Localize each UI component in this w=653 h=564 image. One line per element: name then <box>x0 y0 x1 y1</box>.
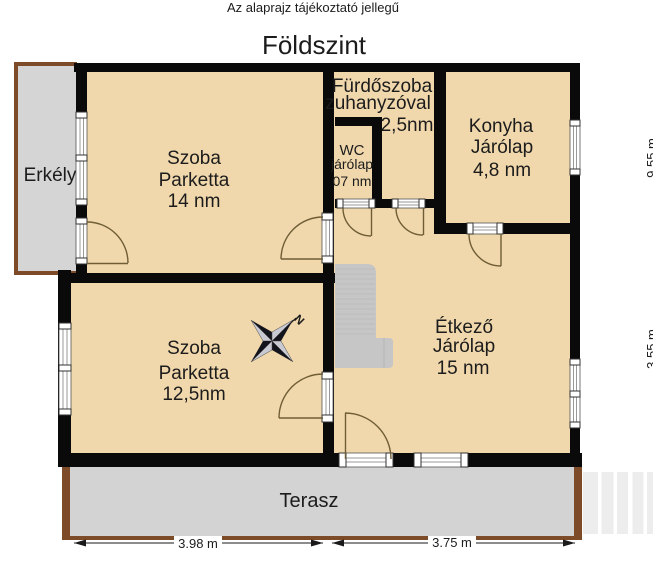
svg-text:Szoba: Szoba <box>167 338 221 359</box>
svg-text:Konyha: Konyha <box>469 116 534 137</box>
svg-text:2,5nm: 2,5nm <box>381 115 434 136</box>
svg-text:Étkező: Étkező <box>435 317 493 338</box>
svg-text:9,55 m: 9,55 m <box>644 138 653 178</box>
svg-text:Járólap: Járólap <box>471 137 533 158</box>
svg-text:Járólap: Járólap <box>433 336 495 357</box>
svg-text:12,5nm: 12,5nm <box>162 384 225 405</box>
svg-text:Az alaprajz tájékoztató jelleg: Az alaprajz tájékoztató jellegű <box>227 0 399 15</box>
svg-text:Terasz: Terasz <box>280 490 339 512</box>
svg-text:Szoba: Szoba <box>167 148 221 169</box>
svg-text:járólap: járólap <box>330 156 373 172</box>
svg-text:3.98 m: 3.98 m <box>178 536 218 551</box>
svg-text:4,8 nm: 4,8 nm <box>473 160 531 181</box>
svg-text:15 nm: 15 nm <box>437 358 490 379</box>
svg-text:Parketta: Parketta <box>159 363 230 384</box>
svg-text:3.75 m: 3.75 m <box>432 535 472 550</box>
svg-text:zuhanyzóval: zuhanyzóval <box>325 93 431 114</box>
svg-text:07 nm: 07 nm <box>333 173 372 189</box>
svg-text:14 nm: 14 nm <box>168 191 221 212</box>
svg-text:Erkély: Erkély <box>24 165 77 186</box>
svg-text:Földszint: Földszint <box>262 30 367 60</box>
svg-text:3,55 m: 3,55 m <box>644 329 653 369</box>
svg-text:Parketta: Parketta <box>159 170 230 191</box>
